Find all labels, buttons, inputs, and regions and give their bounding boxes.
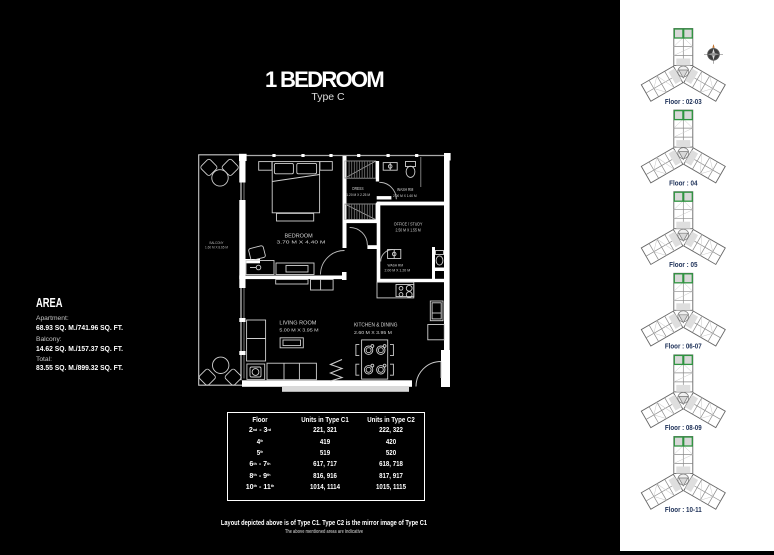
svg-text:2.50 M X 1.55 M: 2.50 M X 1.55 M <box>396 227 422 232</box>
svg-text:2.60 M X 3.95 M: 2.60 M X 3.95 M <box>354 330 392 336</box>
svg-text:KITCHEN & DINING: KITCHEN & DINING <box>354 323 398 329</box>
svg-text:1.60 M X 8.65 M: 1.60 M X 8.65 M <box>205 246 228 250</box>
svg-text:2.00 M X 1.60 M: 2.00 M X 1.60 M <box>393 193 417 198</box>
svg-text:Floor : 06-07: Floor : 06-07 <box>665 344 702 351</box>
svg-text:3.70 M X 4.40 M: 3.70 M X 4.40 M <box>277 239 326 245</box>
svg-text:Floor : 08-09: Floor : 08-09 <box>665 425 702 432</box>
svg-text:Floor : 02-03: Floor : 02-03 <box>665 99 702 106</box>
svg-text:LIVING ROOM: LIVING ROOM <box>279 321 317 327</box>
svg-text:Floor : 10-11: Floor : 10-11 <box>665 507 702 514</box>
svg-text:WASH RM: WASH RM <box>397 187 414 192</box>
svg-text:Floor : 05: Floor : 05 <box>669 262 697 269</box>
svg-text:BEDROOM: BEDROOM <box>285 233 314 239</box>
svg-text:5.00 M X 3.95 M: 5.00 M X 3.95 M <box>279 328 318 334</box>
svg-text:BALCONY: BALCONY <box>210 241 224 245</box>
svg-text:DRESS: DRESS <box>352 186 364 191</box>
svg-text:1.20 M X 2.25 M: 1.20 M X 2.25 M <box>346 192 370 197</box>
svg-text:2.00 M X 1.20 M: 2.00 M X 1.20 M <box>385 268 411 273</box>
svg-text:Floor : 04: Floor : 04 <box>669 180 697 187</box>
svg-text:OFFICE / STUDY: OFFICE / STUDY <box>394 221 423 226</box>
